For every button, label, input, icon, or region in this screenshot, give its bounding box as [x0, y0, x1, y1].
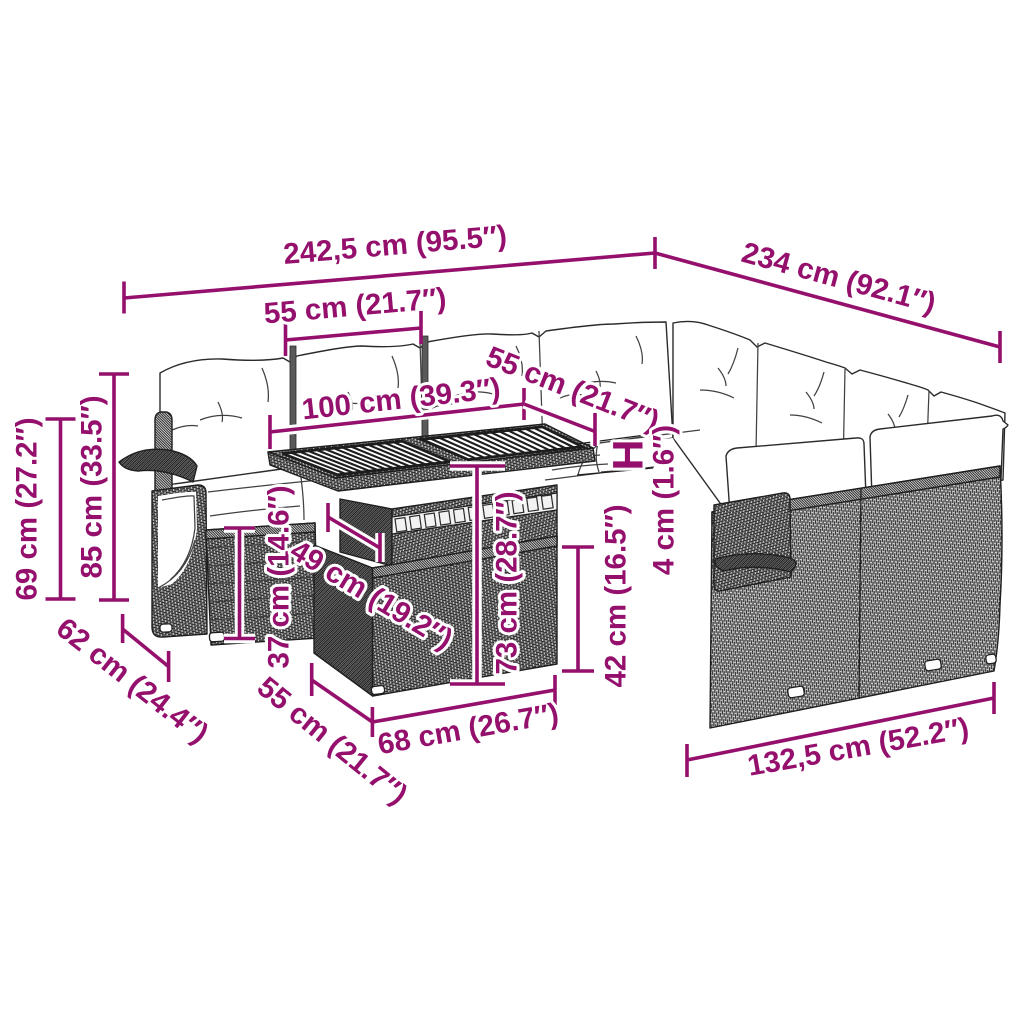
svg-text:85 cm (33.5″): 85 cm (33.5″) [76, 395, 109, 578]
svg-text:69 cm (27.2″): 69 cm (27.2″) [11, 417, 44, 600]
svg-text:4 cm (1.6″): 4 cm (1.6″) [648, 425, 681, 575]
svg-text:37 cm (14.6″): 37 cm (14.6″) [263, 485, 296, 668]
svg-text:H: H [604, 439, 652, 470]
svg-text:42 cm (16.5″): 42 cm (16.5″) [600, 504, 633, 687]
svg-text:73 cm (28.7″): 73 cm (28.7″) [491, 491, 524, 674]
